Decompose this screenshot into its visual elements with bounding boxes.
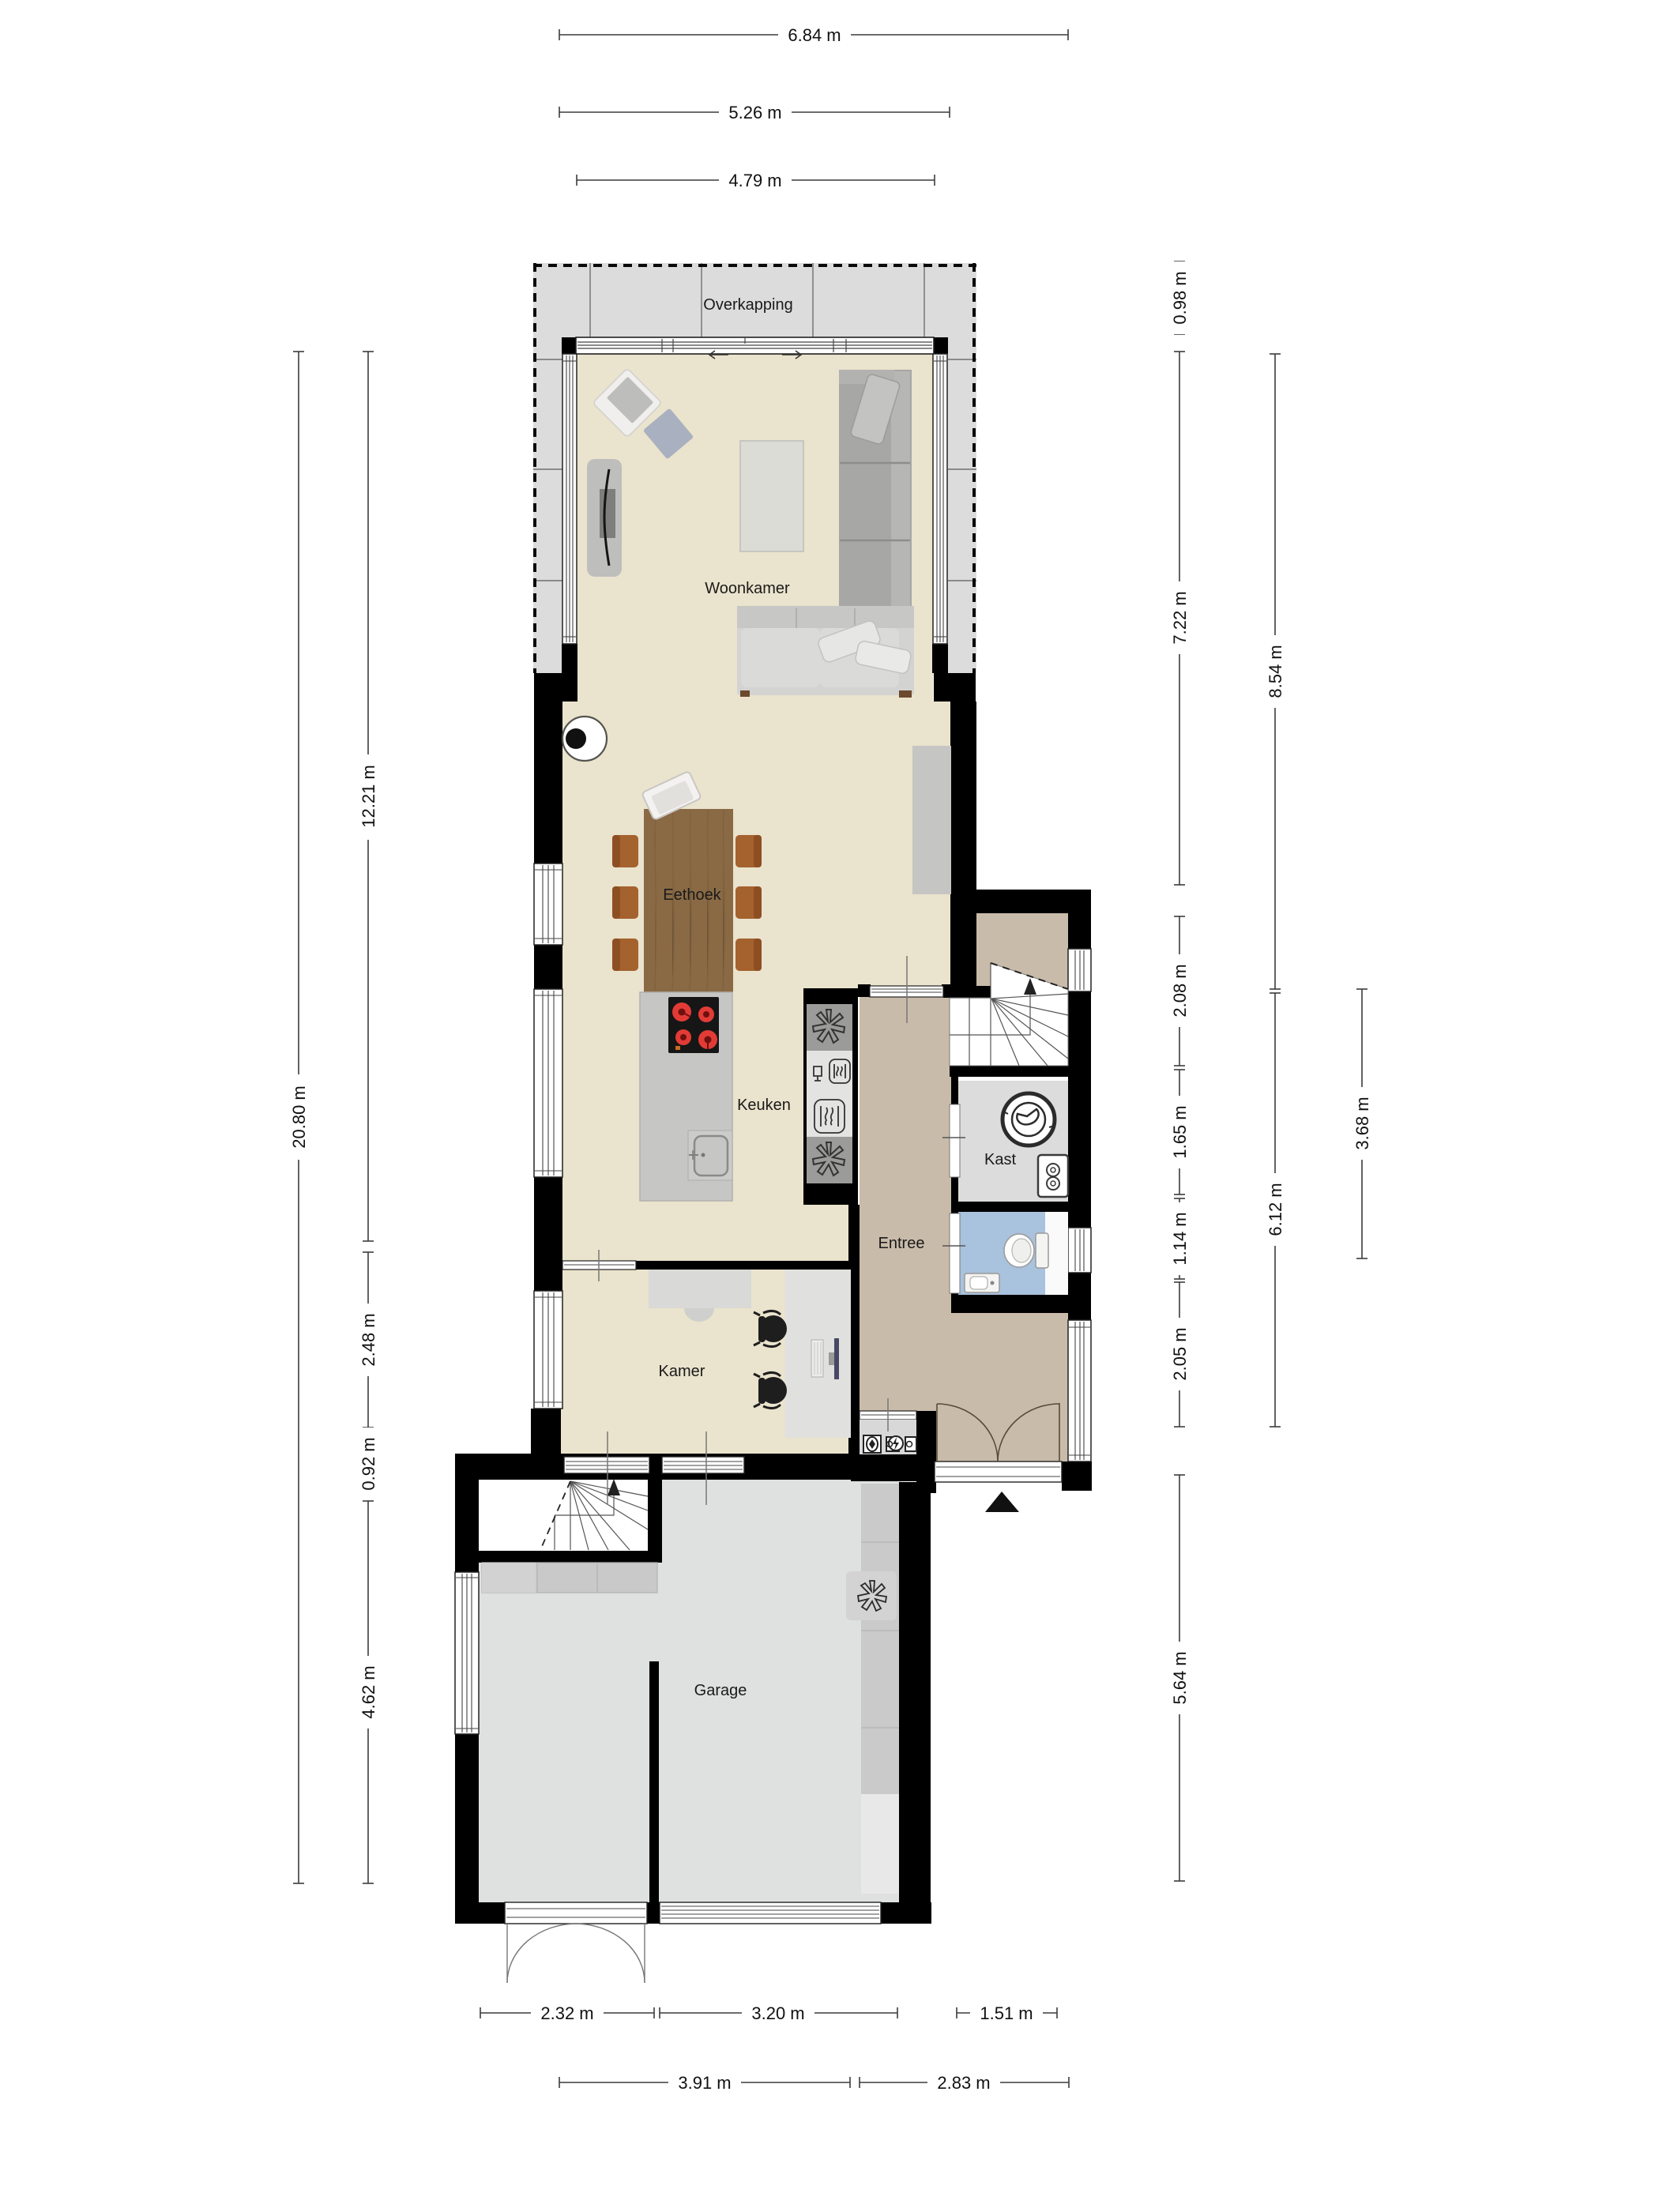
svg-text:Kast: Kast [984,1151,1016,1168]
svg-text:Entree: Entree [878,1235,925,1252]
svg-text:3.91 m: 3.91 m [678,2073,731,2093]
svg-text:Kamer: Kamer [659,1363,705,1380]
svg-text:3.68 m: 3.68 m [1352,1097,1372,1149]
svg-text:2.05 m: 2.05 m [1170,1327,1190,1380]
svg-text:6.84 m: 6.84 m [788,25,841,45]
svg-text:20.80 m: 20.80 m [289,1085,309,1149]
svg-text:4.79 m: 4.79 m [728,171,781,190]
svg-text:Woonkamer: Woonkamer [705,580,790,597]
svg-text:2.83 m: 2.83 m [937,2073,990,2093]
svg-text:1.51 m: 1.51 m [980,2003,1033,2023]
svg-text:12.21 m: 12.21 m [359,765,378,828]
svg-text:Overkapping: Overkapping [703,296,792,314]
svg-text:4.62 m: 4.62 m [359,1665,378,1718]
svg-text:2.32 m: 2.32 m [540,2003,593,2023]
svg-text:Eethoek: Eethoek [663,886,721,904]
svg-text:0.92 m: 0.92 m [359,1437,378,1490]
svg-text:7.22 m: 7.22 m [1170,591,1190,644]
svg-text:3.20 m: 3.20 m [751,2003,804,2023]
svg-text:1.14 m: 1.14 m [1170,1212,1190,1265]
svg-text:2.48 m: 2.48 m [359,1313,378,1366]
svg-text:5.64 m: 5.64 m [1170,1651,1190,1704]
svg-text:6.12 m: 6.12 m [1266,1183,1285,1236]
svg-text:2.08 m: 2.08 m [1170,964,1190,1017]
svg-text:Garage: Garage [694,1682,747,1699]
svg-text:8.54 m: 8.54 m [1266,645,1285,698]
svg-text:5.26 m: 5.26 m [728,103,781,122]
svg-text:0.98 m: 0.98 m [1170,271,1190,324]
svg-text:1.65 m: 1.65 m [1170,1105,1190,1158]
svg-text:Keuken: Keuken [737,1097,791,1114]
